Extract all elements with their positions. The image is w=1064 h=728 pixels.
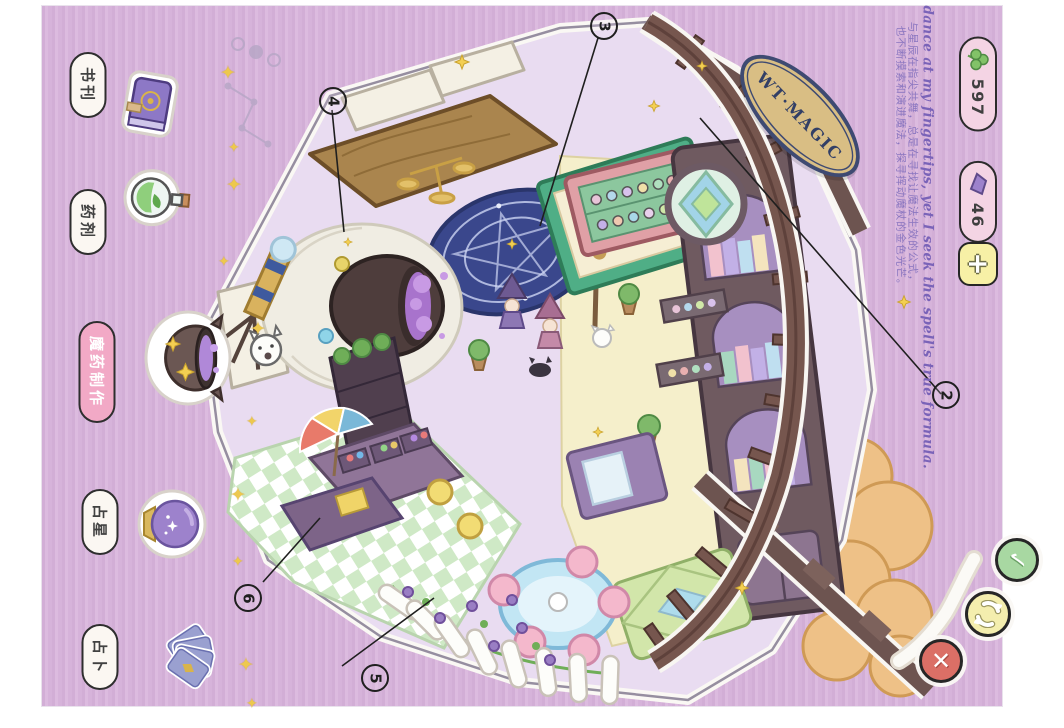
callout-4: 4: [319, 87, 347, 115]
callout-5: 5: [361, 664, 389, 692]
constellation-doodle: [226, 38, 281, 147]
sparkle-icon: [228, 140, 240, 156]
sparkle-icon: [226, 174, 242, 196]
screenshot-page: WT·MAGIC 书刊 药剂: [0, 0, 1064, 728]
callout-6: 6: [234, 584, 262, 612]
callout-3: 3: [590, 12, 618, 40]
tarot-cards-icon[interactable]: [134, 614, 224, 702]
tab-potion-making[interactable]: 魔药制作: [79, 321, 116, 423]
confirm-button[interactable]: ✓: [995, 538, 1039, 582]
rotate-icon: [974, 600, 1002, 628]
gem-currency-value: 46: [969, 203, 988, 228]
sparkle-icon: [246, 414, 258, 430]
clover-currency-value: 597: [969, 79, 988, 117]
tab-divination-label: 占卜: [90, 639, 111, 675]
clover-currency-counter[interactable]: 597: [959, 37, 997, 132]
tab-books-label: 书刊: [78, 67, 99, 103]
sparkle-icon: [220, 62, 236, 84]
callout-2: 2: [932, 381, 960, 409]
stool[interactable]: [458, 514, 482, 538]
clover-icon: [966, 48, 990, 72]
tab-books[interactable]: 书刊: [70, 52, 107, 118]
gem-icon: [966, 172, 990, 196]
tab-potion-making-label: 魔药制作: [87, 336, 108, 408]
cauldron-icon[interactable]: [138, 306, 242, 414]
sparkle-icon: [232, 554, 244, 570]
confirm-check-icon: ✓: [1005, 550, 1029, 570]
close-button[interactable]: ✕: [919, 639, 963, 683]
sparkle-icon: [250, 318, 266, 340]
add-currency-button[interactable]: +: [958, 242, 998, 286]
rotate-button[interactable]: [965, 591, 1011, 637]
book-icon[interactable]: [114, 68, 186, 144]
sparkle-icon: [238, 654, 254, 676]
gem-currency-counter[interactable]: 46: [959, 161, 997, 243]
tab-astrology[interactable]: 占星: [82, 489, 119, 555]
sparkle-icon: [230, 484, 246, 506]
tab-potions[interactable]: 药剂: [70, 189, 107, 255]
close-icon: ✕: [931, 649, 951, 673]
stool[interactable]: [428, 480, 452, 504]
tab-divination[interactable]: 占卜: [82, 624, 119, 690]
sparkle-icon: [246, 696, 258, 712]
tab-potions-label: 药剂: [78, 204, 99, 240]
caption-chinese-line2: 也不断摸索和演进魔法，探寻挥动魔杖的金色光芒。: [895, 26, 907, 291]
tab-astrology-label: 占星: [90, 504, 111, 540]
crystal-ball-icon[interactable]: [134, 486, 210, 566]
game-canvas: WT·MAGIC 书刊 药剂: [42, 6, 1002, 706]
plus-icon: +: [964, 252, 992, 275]
sparkle-icon: [218, 254, 230, 270]
stained-glass-window: [668, 166, 744, 242]
potion-bottle-icon[interactable]: [122, 164, 190, 236]
